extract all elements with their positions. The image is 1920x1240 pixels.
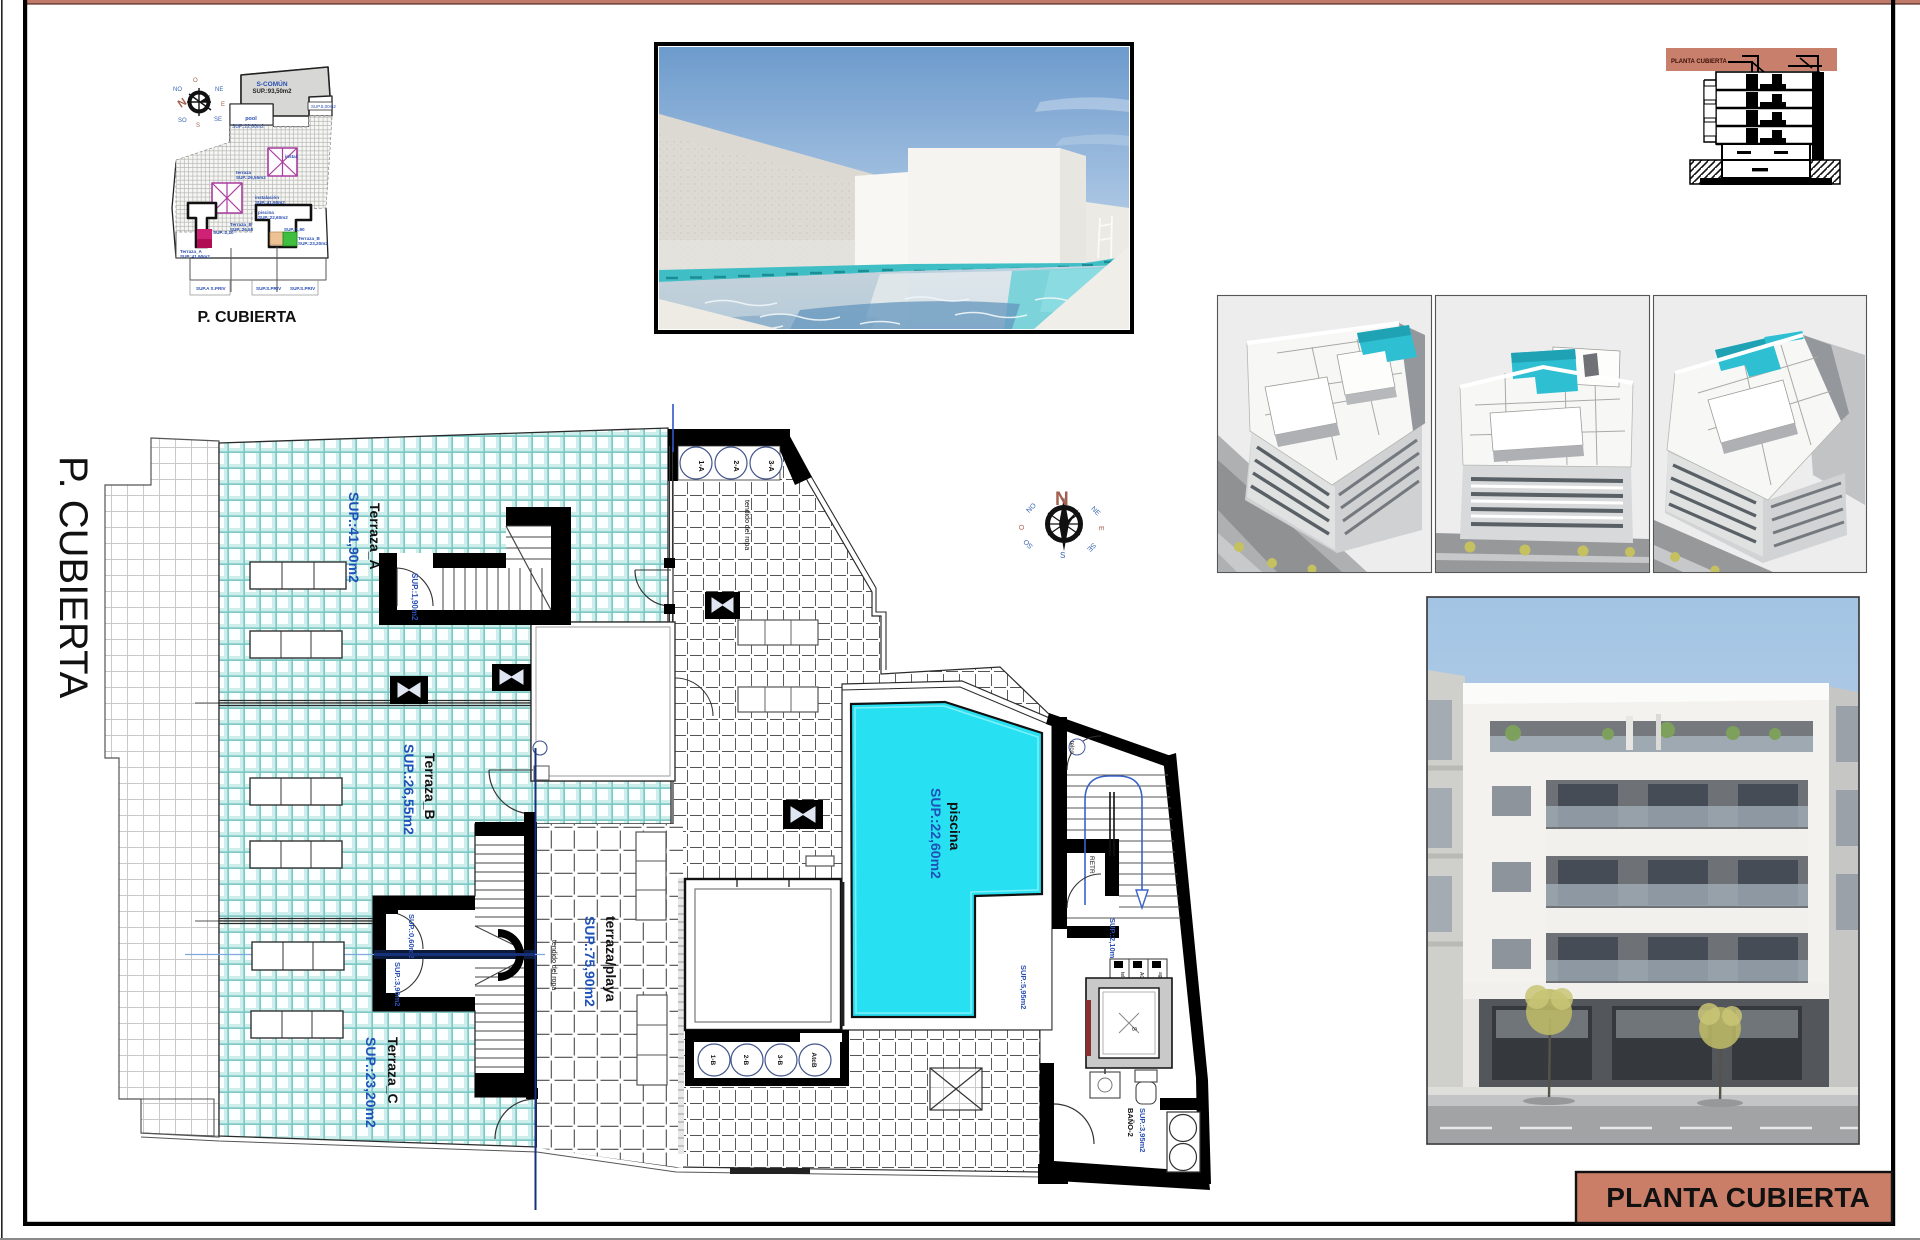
svg-text:SUP.:3,95m2: SUP.:3,95m2 [1138, 1108, 1147, 1152]
svg-text:SUP.:41,90m2: SUP.:41,90m2 [346, 492, 362, 583]
svg-text:S: S [1060, 551, 1065, 560]
svg-text:SUP.5,00m2: SUP.5,00m2 [311, 104, 336, 109]
svg-text:SUP.:26,55: SUP.:26,55 [230, 227, 254, 232]
svg-text:SUP.:1,90: SUP.:1,90 [284, 227, 305, 232]
svg-text:P. CUBIERTA: P. CUBIERTA [198, 309, 297, 326]
svg-text:SUP.:3,90m2: SUP.:3,90m2 [393, 962, 402, 1006]
svg-text:SUP.:23,20m2: SUP.:23,20m2 [363, 1037, 379, 1128]
svg-text:2-A: 2-A [732, 460, 739, 471]
svg-text:3-A: 3-A [767, 460, 774, 471]
svg-text:SUP.:22,60m2: SUP.:22,60m2 [232, 124, 264, 130]
svg-text:AtcB: AtcB [810, 1052, 817, 1067]
svg-text:P. CUBIERTA: P. CUBIERTA [51, 456, 95, 699]
svg-text:SUP.:93,50m2: SUP.:93,50m2 [253, 89, 293, 95]
svg-text:SUP.:5,95m2: SUP.:5,95m2 [1019, 965, 1028, 1009]
svg-text:N: N [1055, 489, 1069, 510]
svg-text:SUP.:1,90m2: SUP.:1,90m2 [410, 573, 419, 621]
svg-text:SUP.:2,10m2: SUP.:2,10m2 [1108, 918, 1117, 962]
svg-text:SUP.S.PRIV: SUP.S.PRIV [290, 286, 316, 291]
svg-text:PLANTA CUBIERTA: PLANTA CUBIERTA [1606, 1182, 1870, 1213]
svg-text:Terraza_B: Terraza_B [422, 753, 438, 820]
svg-text:SUP.S.PRIV: SUP.S.PRIV [256, 286, 282, 291]
svg-text:3-B: 3-B [776, 1055, 783, 1066]
svg-text:1-A: 1-A [697, 460, 704, 471]
svg-text:E: E [221, 102, 225, 108]
svg-text:pool: pool [245, 116, 257, 122]
svg-text:tendido del ropa: tendido del ropa [743, 500, 750, 550]
svg-text:SUP.:26,55m2: SUP.:26,55m2 [401, 744, 417, 835]
svg-text:telco: telco [1068, 741, 1074, 754]
svg-text:Terraza_C: Terraza_C [385, 1037, 401, 1104]
svg-text:S: S [196, 123, 200, 129]
svg-text:BAÑO-2: BAÑO-2 [1126, 1108, 1135, 1137]
svg-text:Terraza_A: Terraza_A [367, 503, 383, 570]
svg-text:SUP.:22,60m2: SUP.:22,60m2 [928, 788, 944, 879]
svg-text:terraza/playa: terraza/playa [603, 916, 619, 1002]
svg-text:E: E [1097, 526, 1104, 531]
svg-text:SUP.:23,20m2: SUP.:23,20m2 [298, 241, 328, 246]
svg-text:2-B: 2-B [742, 1055, 749, 1066]
svg-text:SUP.:0,60m2: SUP.:0,60m2 [407, 914, 416, 958]
svg-text:tendido del ropa: tendido del ropa [550, 940, 557, 990]
svg-text:RETR: RETR [1088, 856, 1095, 874]
svg-text:SUP.A S.PRIV: SUP.A S.PRIV [196, 286, 227, 291]
svg-text:instal.: instal. [285, 154, 298, 159]
svg-text:SUP.:22,60m2: SUP.:22,60m2 [258, 215, 288, 220]
svg-text:SUP.:26,55m2: SUP.:26,55m2 [236, 175, 266, 180]
svg-text:PLANTA CUBIERTA: PLANTA CUBIERTA [1671, 59, 1728, 65]
svg-text:O: O [193, 78, 198, 84]
svg-text:SUP.:75,90m2: SUP.:75,90m2 [582, 916, 598, 1007]
svg-text:piscina: piscina [947, 802, 963, 850]
svg-text:NO: NO [173, 87, 182, 93]
svg-text:1-B: 1-B [709, 1055, 716, 1066]
svg-text:SUP.:41,90m2: SUP.:41,90m2 [255, 200, 285, 205]
svg-text:8: 8 [1130, 1027, 1137, 1031]
svg-text:S-COMÚN: S-COMÚN [256, 79, 287, 88]
svg-text:SO: SO [178, 118, 187, 124]
svg-text:SE: SE [214, 117, 222, 123]
svg-text:O: O [1019, 524, 1026, 530]
svg-text:NE: NE [215, 87, 223, 93]
